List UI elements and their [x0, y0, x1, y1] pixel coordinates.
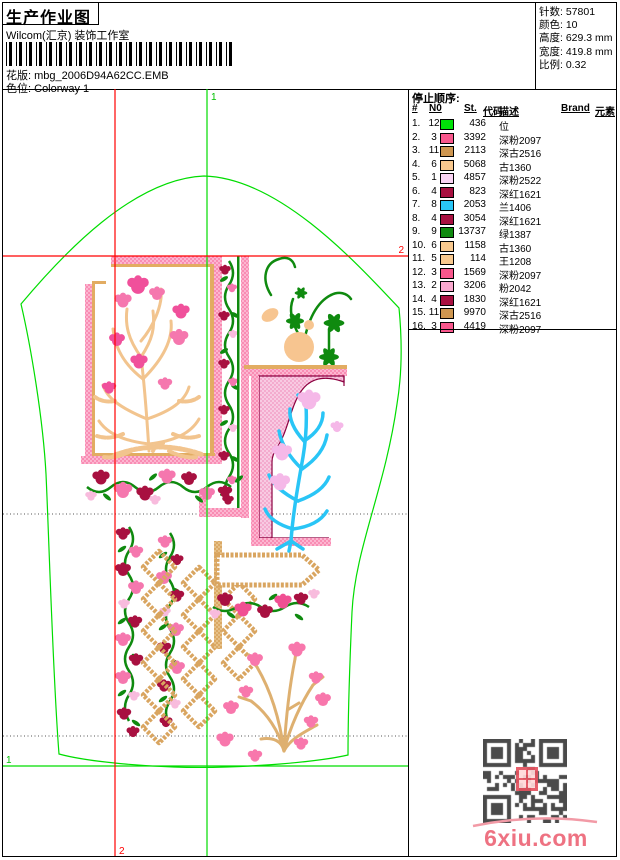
barcode-icon — [6, 42, 238, 66]
arch-panel — [251, 376, 344, 551]
color-chip — [440, 146, 454, 157]
floral-strip-mid — [209, 589, 320, 622]
table-row: 14.41830深红1621 — [409, 294, 617, 308]
panel-top-border-tan — [244, 365, 347, 369]
page-border: 生产作业图 Wilcom(汇京) 装饰工作室 花版: mbg_2006D94A6… — [2, 2, 617, 857]
col-stitches: St. — [464, 103, 477, 114]
table-row: 10.61158古1360 — [409, 240, 617, 254]
table-row: 11.5114王1208 — [409, 253, 617, 267]
table-row: 9.913737绿1387 — [409, 226, 617, 240]
table-row: 8.43054深红1621 — [409, 213, 617, 227]
col-index: # — [412, 103, 418, 114]
height-value: 629.3 mm — [566, 32, 613, 44]
color-chip — [440, 254, 454, 265]
bottom-plant — [216, 642, 331, 762]
color-chip — [440, 227, 454, 238]
color-chip — [440, 295, 454, 306]
panel-top-border-pink — [244, 369, 347, 376]
tan-plant — [95, 289, 203, 457]
color-chip — [440, 322, 454, 333]
start-marker-left: 1 — [6, 755, 12, 766]
stitches-label: 针数: — [539, 6, 563, 18]
table-row: 3.112113深古2516 — [409, 145, 617, 159]
table-bottom-divider — [409, 329, 617, 330]
table-row: 6.4823深红1621 — [409, 186, 617, 200]
frame-border — [81, 256, 222, 464]
header: 生产作业图 Wilcom(汇京) 装饰工作室 花版: mbg_2006D94A6… — [3, 3, 616, 90]
studio-subtitle: Wilcom(汇京) 装饰工作室 — [6, 27, 129, 43]
table-row: 16.34419深粉2097 — [409, 321, 617, 335]
floral-border-horizontal — [85, 469, 244, 505]
title-box: 生产作业图 — [3, 3, 99, 25]
end-marker-right: 2 — [398, 245, 404, 256]
color-chip — [440, 200, 454, 211]
color-chip — [440, 241, 454, 252]
end-marker-bottom: 2 — [119, 846, 125, 856]
table-header: # N0 St. 代码 描述 Brand 元素 — [409, 103, 617, 117]
color-chip — [440, 281, 454, 292]
col-element: 元素 — [595, 103, 615, 118]
table-row: 12.31569深粉2097 — [409, 267, 617, 281]
colors-value: 10 — [566, 19, 578, 31]
table-row: 15.119970深古2516 — [409, 307, 617, 321]
col-desc: 描述 — [499, 103, 519, 118]
colors-label: 颜色: — [539, 19, 563, 31]
color-chip — [440, 268, 454, 279]
table-row: 13.23206粉2042 — [409, 280, 617, 294]
stop-sequence-rows: 1.12436位2.33392深粉20973.112113深古25164.650… — [409, 118, 617, 334]
col-needle: N0 — [429, 103, 442, 114]
production-worksheet: 生产作业图 Wilcom(汇京) 装饰工作室 花版: mbg_2006D94A6… — [0, 0, 620, 860]
stop-sequence-panel: 停止顺序: # N0 St. 代码 描述 Brand 元素 1.12436位2.… — [408, 89, 617, 856]
start-marker-top: 1 — [211, 92, 217, 103]
page-title: 生产作业图 — [3, 3, 98, 28]
table-row: 7.82053兰1406 — [409, 199, 617, 213]
table-row: 4.65068古1360 — [409, 159, 617, 173]
table-row: 2.33392深粉2097 — [409, 132, 617, 146]
color-chip — [440, 214, 454, 225]
color-chip — [440, 160, 454, 171]
width-label: 宽度: — [539, 46, 563, 58]
table-row: 5.14857深粉2522 — [409, 172, 617, 186]
watermark-text: 6xiu.com — [471, 825, 601, 852]
color-chip — [440, 119, 454, 130]
scale-value: 0.32 — [566, 59, 586, 71]
col-brand: Brand — [561, 103, 590, 114]
width-value: 419.8 mm — [566, 46, 613, 58]
scale-label: 比例: — [539, 59, 563, 71]
registration-lines: 1 1 2 2 — [3, 89, 408, 856]
stats-box: 针数: 57801 颜色: 10 高度: 629.3 mm 宽度: 419.8 … — [535, 3, 616, 89]
qr-seal-icon — [516, 767, 538, 791]
color-chip — [440, 133, 454, 144]
table-row: 1.12436位 — [409, 118, 617, 132]
stitches-value: 57801 — [566, 6, 595, 18]
floral-strip-left — [115, 527, 144, 737]
height-label: 高度: — [539, 32, 563, 44]
color-chip — [440, 173, 454, 184]
color-chip — [440, 308, 454, 319]
corner-flower — [259, 258, 351, 367]
banner-shape — [217, 555, 319, 585]
color-chip — [440, 187, 454, 198]
design-preview: 1 1 2 2 — [3, 89, 408, 856]
